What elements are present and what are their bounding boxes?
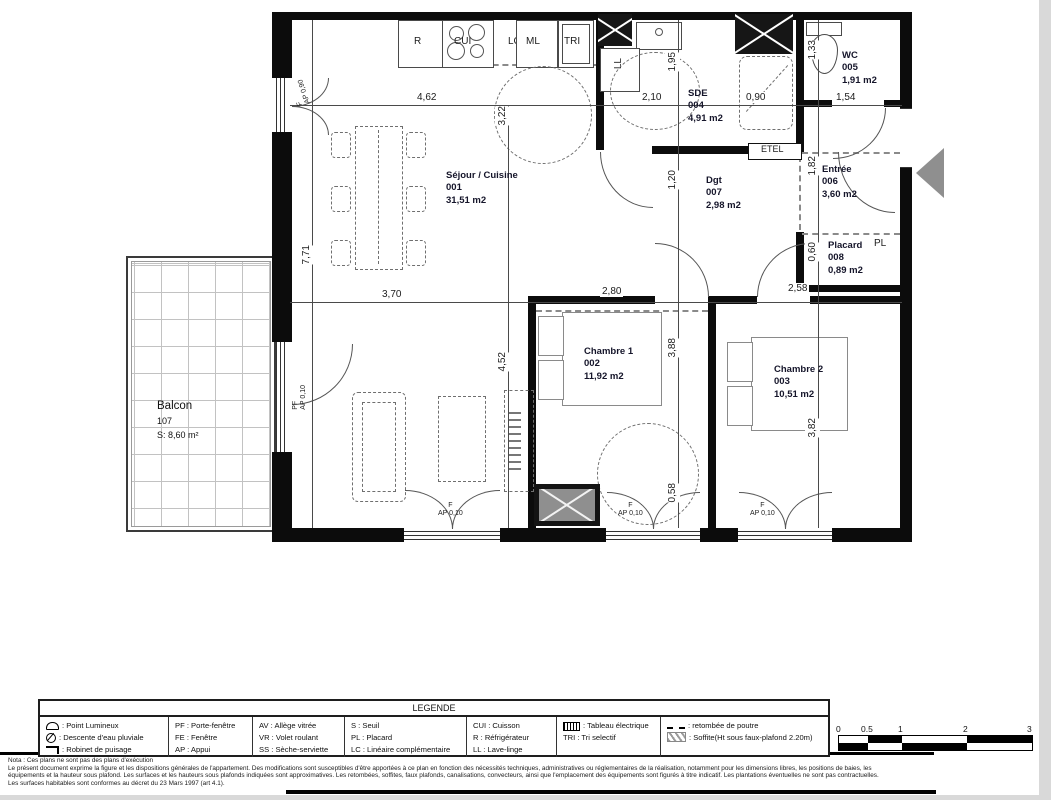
dim-line: [290, 302, 902, 303]
tv-unit: [509, 412, 521, 470]
dining-chair: [406, 240, 426, 266]
door-arc-sde: [600, 152, 653, 208]
room-label-entree: Entrée 006 3,60 m2: [822, 164, 857, 201]
window-sejour-south: [404, 531, 500, 540]
washbasin-drain-icon: [655, 28, 663, 36]
legend-col-structure: : retombée de poutre : Soffite(Ht sous f…: [660, 717, 826, 757]
tri-label: TRI: [562, 36, 582, 47]
window-arc: [785, 492, 832, 529]
scale-bar-segments: [838, 735, 1033, 751]
wall-left-1: [272, 12, 292, 78]
legend-col-openings: PF : Porte-fenêtre FE : Fenêtre AP : App…: [168, 717, 252, 757]
dining-chair: [406, 186, 426, 212]
dining-chair: [331, 132, 351, 158]
balcony-area: [126, 256, 276, 532]
cooktop-label: CUI: [452, 36, 473, 47]
legend-title: LEGENDE: [40, 701, 828, 717]
window-chambre1-south: [606, 531, 700, 540]
room-label-balcon: Balcon 107 S: 8,60 m²: [157, 398, 199, 442]
room-label-chambre1: Chambre 1 002 11,92 m2: [584, 346, 633, 383]
window-arc-kitchen-bottom: [292, 106, 329, 135]
plan-notes: Nota : Ces plans ne sont pas des plans d…: [8, 757, 933, 787]
turning-circle-chambre1: [597, 423, 699, 525]
nightstand: [727, 386, 753, 426]
wall-left-3: [272, 452, 292, 540]
turning-circle-sde: [610, 52, 700, 130]
etel-label: ETEL: [759, 145, 786, 155]
door-arc-chambre1: [655, 243, 709, 297]
sofa-seat: [362, 402, 396, 492]
sheet-divider-bottom: [286, 790, 936, 794]
dining-chair: [331, 240, 351, 266]
beam-dashed-icon: [667, 727, 685, 729]
water-tap-icon: [46, 746, 59, 754]
dim-window-height: 0,58: [665, 483, 680, 502]
soffit-duct-icon: [534, 484, 600, 526]
dim-sde-width: 2,10: [640, 92, 663, 103]
opening-label-balcony-door: PF AP 0,10: [292, 385, 308, 410]
nightstand: [727, 342, 753, 382]
note-line: Les surfaces habitables sont conformes a…: [8, 780, 933, 788]
opening-label-window-chambre2: F AP 0,10: [750, 502, 775, 518]
wall-bottom-3: [700, 528, 738, 542]
dim-shower-width: 0,90: [744, 92, 767, 103]
dim-chambre1-width: 2,80: [600, 286, 623, 297]
dim-line: [312, 20, 313, 528]
dim-chambre2-height: 3,82: [805, 418, 820, 437]
room-label-chambre2: Chambre 2 003 10,51 m2: [774, 364, 823, 401]
opening-label-window-chambre1: F AP 0,10: [618, 502, 643, 518]
entrance-threshold: [900, 108, 912, 168]
dim-line: [678, 20, 679, 528]
dim-line: [290, 105, 902, 106]
note-line: équipements et la hauteur sous plafond. …: [8, 772, 933, 780]
electrical-panel-icon: [563, 722, 580, 731]
room-label-sejour: Séjour / Cuisine 001 31,51 m2: [446, 170, 518, 207]
washbasin: [636, 22, 682, 50]
note-line: Le présent document exprime la figure et…: [8, 765, 933, 773]
room-label-dgt: Dgt 007 2,98 m2: [706, 175, 741, 212]
wall-right-2: [900, 168, 912, 542]
dim-entree-height: 1,82: [805, 156, 820, 175]
opening-label-window-sejour: F AP 0,10: [438, 502, 463, 518]
floor-plan: Balcon 107 S: 8,60 m² R CUI LC ML TRI: [0, 0, 1051, 700]
wall-top: [272, 12, 912, 20]
dim-sejour-height-top: 3,22: [495, 106, 510, 125]
fridge-label: R: [412, 36, 423, 47]
room-label-sde: SDE 004 4,91 m2: [688, 88, 723, 125]
beam-entree-bottom: [802, 233, 900, 235]
room-label-wc: WC 005 1,91 m2: [842, 50, 877, 87]
coffee-table: [438, 396, 486, 482]
dim-left-height: 7,71: [299, 245, 314, 264]
window-balcony-door: [276, 342, 285, 452]
legend-col-misc: S : Seuil PL : Placard LC : Linéaire com…: [344, 717, 466, 757]
page-edge-bottom: [0, 795, 1051, 800]
dining-chair: [406, 132, 426, 158]
dim-dgt-height: 1,20: [665, 170, 680, 189]
rain-downpipe-icon: [46, 733, 56, 743]
wall-left-2: [272, 132, 292, 342]
dim-chambre2-width: 2,58: [786, 283, 809, 294]
duct-icon: [598, 14, 632, 46]
wall-placard-bottom: [796, 285, 912, 292]
dim-line: [818, 20, 819, 528]
dim-chambre1-height: 3,88: [665, 338, 680, 357]
dim-placard-height: 0,60: [805, 242, 820, 261]
room-label-placard: Placard 008 0,89 m2: [828, 240, 863, 277]
legend-col-appliances: CUI : Cuisson R : Réfrigérateur LL : Lav…: [466, 717, 556, 757]
window-chambre2-south: [738, 531, 832, 540]
soffit-hatch-icon: [667, 732, 686, 742]
note-line: Nota : Ces plans ne sont pas des plans d…: [8, 757, 933, 765]
floor-plan-page: { "rooms": { "sejour": {"name":"Séjour /…: [0, 0, 1051, 800]
dining-chair: [331, 186, 351, 212]
page-edge-right: [1039, 0, 1051, 800]
washer-label: ML: [524, 36, 542, 47]
legend-box: LEGENDE : Point Lumineux : Descente d'ea…: [38, 699, 830, 757]
beam-dgt-entree: [799, 156, 801, 230]
wall-chambre1-chambre2: [708, 304, 716, 528]
nightstand: [538, 316, 564, 356]
wall-right-1: [900, 12, 912, 108]
dining-table-centerline: [378, 130, 379, 264]
etel-box: ETEL: [748, 143, 802, 160]
shower-head-zone: [735, 14, 793, 54]
wall-bottom-2: [500, 528, 606, 542]
dim-wc-width: 1,54: [834, 92, 857, 103]
dim-line: [508, 105, 509, 528]
window-kitchen: [276, 78, 285, 132]
wall-sde-wc: [796, 20, 804, 154]
pl-label: PL: [872, 238, 888, 249]
scale-bar: 0 0.5 1 2 3: [838, 724, 1038, 754]
dining-table: [355, 126, 403, 270]
entrance-arrow-icon: [916, 148, 944, 198]
dim-sde-height: 1,95: [665, 52, 680, 71]
nightstand: [538, 360, 564, 400]
dim-sejour-height-bottom: 4,52: [495, 352, 510, 371]
wall-bottom-1: [272, 528, 404, 542]
dim-sejour-width-bottom: 3,70: [380, 289, 403, 300]
ceiling-light-icon: [46, 722, 59, 730]
dim-wc-height: 1,33: [805, 40, 820, 59]
legend-col-symbols: : Point Lumineux : Descente d'eau pluvia…: [40, 717, 168, 757]
legend-col-glazing: AV : Allège vitrée VR : Volet roulant SS…: [252, 717, 344, 757]
legend-col-electrical: : Tableau électrique TRI : Tri selectif: [556, 717, 660, 757]
dim-sejour-width-top: 4,62: [415, 92, 438, 103]
